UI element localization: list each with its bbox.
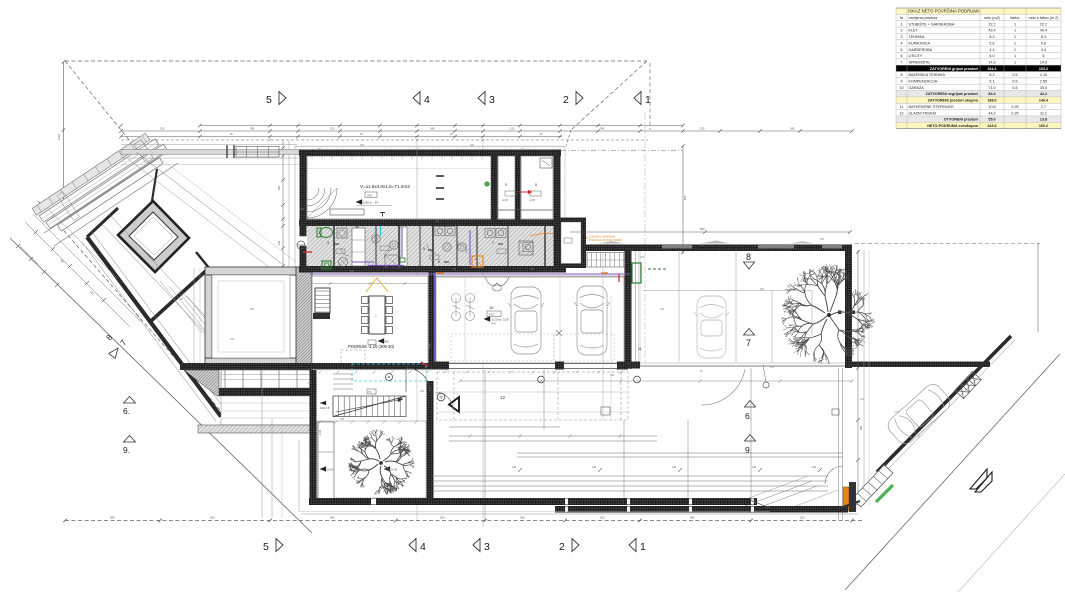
svg-text:420: 420 bbox=[640, 256, 645, 259]
svg-text:GARDEROBA: GARDEROBA bbox=[909, 48, 933, 52]
svg-text:GP1: GP1 bbox=[367, 194, 373, 198]
svg-text:5: 5 bbox=[266, 94, 272, 106]
svg-text:345: 345 bbox=[250, 308, 255, 311]
svg-text:520: 520 bbox=[800, 516, 805, 520]
svg-text:1: 1 bbox=[1014, 41, 1016, 45]
svg-text:516: 516 bbox=[660, 308, 665, 311]
svg-text:7: 7 bbox=[746, 338, 751, 348]
svg-text:+0.00: +0.00 bbox=[327, 469, 334, 472]
svg-text:365: 365 bbox=[278, 185, 281, 190]
svg-text:40.4: 40.4 bbox=[1040, 29, 1047, 33]
svg-text:520: 520 bbox=[440, 516, 445, 520]
svg-text:140: 140 bbox=[278, 240, 281, 245]
svg-text:7: 7 bbox=[492, 241, 494, 245]
svg-text:BS: BS bbox=[385, 340, 389, 344]
svg-text:KUPAONICA: KUPAONICA bbox=[909, 41, 931, 45]
svg-text:2: 2 bbox=[559, 541, 565, 553]
svg-text:BAZENSKA TEHNIKA: BAZENSKA TEHNIKA bbox=[909, 73, 946, 77]
svg-text:PODLOGA / BUDUCI TEREN: PODLOGA / BUDUCI TEREN bbox=[589, 239, 622, 242]
svg-text:6.: 6. bbox=[123, 406, 130, 416]
svg-text:1: 1 bbox=[645, 94, 651, 106]
svg-text:12: 12 bbox=[899, 111, 903, 115]
svg-text:42.2: 42.2 bbox=[1040, 92, 1047, 96]
svg-text:GARAŽA: GARAŽA bbox=[909, 85, 925, 90]
svg-text:850: 850 bbox=[700, 227, 705, 231]
svg-text:2: 2 bbox=[563, 94, 569, 106]
svg-text:0.5: 0.5 bbox=[1012, 80, 1017, 84]
svg-text:120: 120 bbox=[860, 398, 865, 401]
svg-text:4: 4 bbox=[900, 41, 902, 45]
svg-text:16x17.8: 16x17.8 bbox=[320, 406, 330, 410]
svg-text:V=11.8x4.0x1.5=71.4m3: V=11.8x4.0x1.5=71.4m3 bbox=[360, 184, 410, 189]
svg-text:10.8: 10.8 bbox=[988, 105, 995, 109]
svg-text:ZATVORENI negrijani prostori: ZATVORENI negrijani prostori bbox=[926, 92, 978, 96]
svg-text:120: 120 bbox=[330, 127, 335, 131]
svg-text:385: 385 bbox=[690, 516, 695, 520]
svg-text:0.25: 0.25 bbox=[1011, 105, 1018, 109]
svg-text:255: 255 bbox=[340, 418, 345, 421]
svg-text:2.55: 2.55 bbox=[1040, 80, 1047, 84]
svg-text:3: 3 bbox=[484, 541, 490, 553]
svg-text:P=-0: P=-0 bbox=[491, 323, 497, 326]
svg-text:1.80 m - P1: 1.80 m - P1 bbox=[363, 201, 379, 205]
svg-text:245: 245 bbox=[592, 466, 597, 469]
svg-text:366: 366 bbox=[700, 244, 705, 247]
svg-text:385: 385 bbox=[520, 516, 525, 520]
svg-text:520: 520 bbox=[600, 516, 605, 520]
svg-text:584: 584 bbox=[350, 270, 355, 273]
svg-text:243.6: 243.6 bbox=[987, 124, 996, 128]
svg-text:385: 385 bbox=[360, 144, 365, 147]
svg-text:346: 346 bbox=[610, 374, 615, 377]
svg-text:5.6: 5.6 bbox=[989, 41, 994, 45]
svg-text:ULAZNI TRIJEM: ULAZNI TRIJEM bbox=[909, 111, 936, 115]
svg-text:345: 345 bbox=[430, 127, 435, 131]
svg-text:9.: 9. bbox=[123, 445, 130, 455]
svg-text:345: 345 bbox=[300, 208, 305, 211]
svg-text:NETO-PODRUMA sveukupno: NETO-PODRUMA sveukupno bbox=[927, 124, 979, 128]
svg-text:KOMPENZACIJA: KOMPENZACIJA bbox=[909, 80, 938, 84]
svg-text:-0.45: -0.45 bbox=[529, 198, 535, 202]
svg-text:-3.20 do -3.28: -3.20 do -3.28 bbox=[491, 318, 509, 322]
svg-text:ZATVORENI prostori ukupno: ZATVORENI prostori ukupno bbox=[928, 99, 979, 103]
svg-text:faktor: faktor bbox=[1010, 16, 1020, 20]
svg-text:4: 4 bbox=[420, 541, 426, 553]
svg-text:620: 620 bbox=[683, 195, 687, 200]
svg-text:1: 1 bbox=[1014, 48, 1016, 52]
svg-text:11: 11 bbox=[900, 105, 904, 109]
svg-text:254: 254 bbox=[530, 268, 535, 271]
svg-text:55.0: 55.0 bbox=[988, 118, 995, 122]
svg-text:neto (m2): neto (m2) bbox=[984, 16, 1000, 20]
svg-text:120: 120 bbox=[160, 127, 165, 131]
svg-text:162: 162 bbox=[230, 338, 235, 341]
svg-text:PVC: PVC bbox=[489, 313, 494, 317]
svg-text:120: 120 bbox=[510, 127, 515, 131]
svg-text:1: 1 bbox=[1014, 60, 1016, 64]
svg-text:22.2: 22.2 bbox=[988, 22, 995, 26]
svg-text:5.6: 5.6 bbox=[1041, 41, 1046, 45]
svg-text:5: 5 bbox=[900, 48, 902, 52]
svg-text:neto s faktor (m 2): neto s faktor (m 2) bbox=[1029, 16, 1059, 20]
svg-text:8: 8 bbox=[900, 73, 902, 77]
svg-text:4: 4 bbox=[424, 94, 430, 106]
svg-text:6: 6 bbox=[438, 260, 440, 264]
svg-text:13.8: 13.8 bbox=[1040, 118, 1047, 122]
svg-text:245: 245 bbox=[752, 466, 757, 469]
svg-text:4.4: 4.4 bbox=[989, 48, 994, 52]
svg-text:-0.45: -0.45 bbox=[502, 198, 508, 202]
svg-text:2: 2 bbox=[900, 29, 902, 33]
svg-text:120: 120 bbox=[700, 127, 705, 131]
svg-text:5: 5 bbox=[423, 247, 425, 251]
svg-text:11: 11 bbox=[638, 347, 642, 351]
svg-text:OTVORENI prostori: OTVORENI prostori bbox=[944, 118, 978, 122]
svg-text:385: 385 bbox=[330, 516, 335, 520]
svg-text:120: 120 bbox=[452, 268, 457, 271]
svg-text:245: 245 bbox=[512, 466, 517, 469]
svg-text:42.4: 42.4 bbox=[988, 29, 995, 33]
svg-text:11.1: 11.1 bbox=[1040, 111, 1047, 115]
svg-text:6: 6 bbox=[900, 54, 902, 58]
svg-text:380: 380 bbox=[859, 425, 863, 430]
svg-text:345: 345 bbox=[250, 127, 255, 131]
svg-text:260: 260 bbox=[470, 144, 475, 147]
svg-text:TEHNIKA: TEHNIKA bbox=[909, 35, 926, 39]
svg-text:3: 3 bbox=[900, 35, 902, 39]
svg-text:0.5: 0.5 bbox=[1012, 86, 1017, 90]
svg-text:345: 345 bbox=[790, 127, 795, 131]
svg-text:3: 3 bbox=[489, 94, 495, 106]
svg-text:120: 120 bbox=[420, 390, 425, 393]
svg-text:6: 6 bbox=[1042, 54, 1044, 58]
svg-text:1: 1 bbox=[1014, 22, 1016, 26]
svg-text:8: 8 bbox=[746, 252, 751, 262]
svg-text:5: 5 bbox=[263, 541, 269, 553]
svg-text:104.2: 104.2 bbox=[1039, 67, 1048, 71]
svg-text:10: 10 bbox=[899, 86, 903, 90]
svg-text:104.2: 104.2 bbox=[987, 67, 996, 71]
svg-text:ZATVORENI grijani prostori: ZATVORENI grijani prostori bbox=[930, 67, 978, 71]
svg-text:ISKAZ NETO POVRŠINA PODRUMA: ISKAZ NETO POVRŠINA PODRUMA bbox=[908, 9, 980, 14]
svg-text:8.3: 8.3 bbox=[1041, 35, 1046, 39]
svg-text:120: 120 bbox=[520, 148, 525, 151]
svg-text:0.5: 0.5 bbox=[1012, 73, 1017, 77]
svg-text:22.2: 22.2 bbox=[1040, 22, 1047, 26]
svg-text:520: 520 bbox=[210, 516, 215, 520]
svg-text:245: 245 bbox=[812, 466, 817, 469]
svg-text:14.3: 14.3 bbox=[988, 60, 995, 64]
svg-text:8.3: 8.3 bbox=[989, 35, 994, 39]
svg-text:0.25: 0.25 bbox=[1011, 111, 1018, 115]
svg-text:P1: P1 bbox=[369, 390, 373, 394]
svg-text:188.6: 188.6 bbox=[987, 99, 996, 103]
svg-text:4.15: 4.15 bbox=[1040, 73, 1047, 77]
svg-text:+0.00: +0.00 bbox=[319, 429, 322, 436]
svg-text:+0.45: +0.45 bbox=[391, 469, 398, 472]
svg-text:SPREMIŠTE: SPREMIŠTE bbox=[909, 59, 931, 64]
svg-text:220: 220 bbox=[760, 288, 765, 291]
svg-text:14.3: 14.3 bbox=[1040, 60, 1047, 64]
svg-text:1: 1 bbox=[640, 541, 646, 553]
svg-text:KLET: KLET bbox=[909, 29, 919, 33]
svg-text:1: 1 bbox=[1014, 54, 1016, 58]
svg-text:1: 1 bbox=[900, 22, 902, 26]
svg-text:160.2: 160.2 bbox=[1039, 124, 1048, 128]
svg-text:2: 2 bbox=[375, 314, 377, 318]
svg-text:UTILITY: UTILITY bbox=[909, 54, 923, 58]
svg-text:245: 245 bbox=[672, 466, 677, 469]
svg-text:3: 3 bbox=[327, 241, 329, 245]
svg-text:7: 7 bbox=[900, 60, 902, 64]
svg-text:44.2: 44.2 bbox=[988, 111, 995, 115]
svg-text:8: 8 bbox=[535, 183, 537, 187]
svg-text:1: 1 bbox=[1014, 29, 1016, 33]
svg-text:9: 9 bbox=[900, 80, 902, 84]
svg-text:9: 9 bbox=[505, 183, 507, 187]
svg-text:NATKRIVENE STEPENICE: NATKRIVENE STEPENICE bbox=[909, 105, 955, 109]
svg-text:185: 185 bbox=[820, 238, 825, 241]
svg-text:35.5: 35.5 bbox=[1040, 86, 1047, 90]
svg-text:294: 294 bbox=[770, 366, 775, 369]
svg-text:1: 1 bbox=[1014, 35, 1016, 39]
svg-text:2.7: 2.7 bbox=[1041, 105, 1046, 109]
svg-text:84.4: 84.4 bbox=[988, 92, 996, 96]
svg-text:345: 345 bbox=[600, 127, 605, 131]
svg-text:146.4: 146.4 bbox=[1039, 99, 1049, 103]
svg-text:4.4: 4.4 bbox=[1041, 48, 1046, 52]
svg-text:6.0: 6.0 bbox=[989, 54, 994, 58]
svg-text:8.3: 8.3 bbox=[989, 73, 994, 77]
svg-text:12: 12 bbox=[500, 395, 506, 400]
svg-text:10: 10 bbox=[489, 305, 494, 310]
svg-text:385: 385 bbox=[110, 516, 115, 520]
svg-text:namjena prostora: namjena prostora bbox=[909, 16, 939, 20]
svg-text:5.1: 5.1 bbox=[989, 80, 994, 84]
svg-text:1250: 1250 bbox=[57, 134, 61, 140]
svg-text:STUBIŠTE + GARDEROBA: STUBIŠTE + GARDEROBA bbox=[909, 21, 955, 26]
svg-text:71.0: 71.0 bbox=[988, 86, 995, 90]
